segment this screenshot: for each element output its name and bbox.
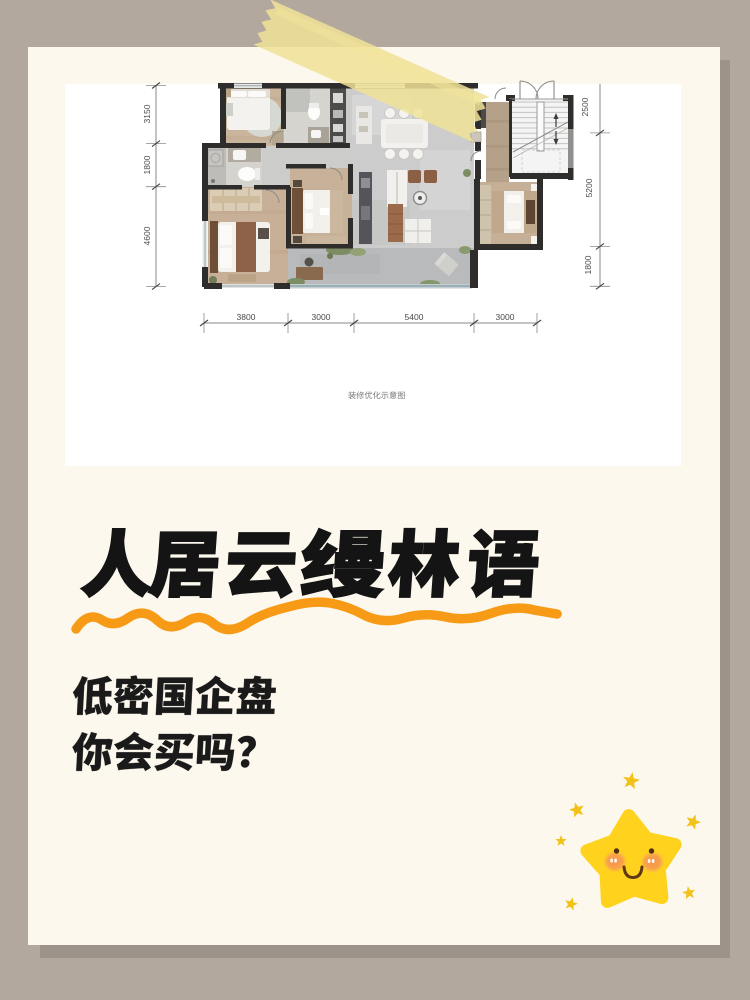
svg-text:5200: 5200 — [584, 178, 594, 197]
svg-text:1800: 1800 — [583, 255, 593, 274]
svg-text:4600: 4600 — [142, 226, 152, 245]
svg-text:2500: 2500 — [580, 97, 590, 116]
svg-text:1800: 1800 — [142, 155, 152, 174]
svg-text:3150: 3150 — [142, 104, 152, 123]
svg-text:5400: 5400 — [405, 312, 424, 322]
svg-text:3800: 3800 — [237, 312, 256, 322]
svg-text:3000: 3000 — [312, 312, 331, 322]
svg-text:3000: 3000 — [496, 312, 515, 322]
